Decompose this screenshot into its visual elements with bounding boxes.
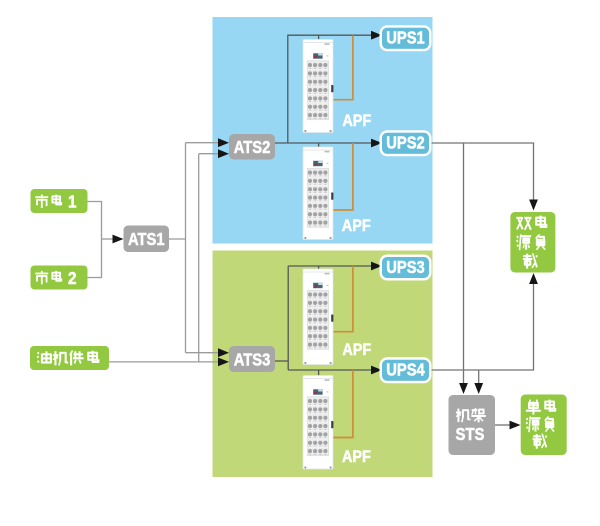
svg-text:APF: APF [342, 448, 371, 466]
svg-text:2: 2 [68, 268, 77, 288]
svg-text:ATS3: ATS3 [234, 350, 271, 370]
svg-text:UPS1: UPS1 [386, 28, 425, 48]
svg-text:ATS1: ATS1 [128, 230, 165, 250]
svg-text:UPS3: UPS3 [386, 258, 425, 278]
svg-text:ATS2: ATS2 [234, 138, 271, 158]
svg-text:1: 1 [68, 191, 77, 211]
svg-text:UPS4: UPS4 [386, 360, 425, 380]
svg-text:UPS2: UPS2 [386, 133, 425, 153]
svg-text:APF: APF [342, 341, 371, 359]
svg-text:APF: APF [342, 217, 371, 235]
svg-text:APF: APF [342, 112, 371, 130]
svg-text:STS: STS [456, 425, 485, 444]
